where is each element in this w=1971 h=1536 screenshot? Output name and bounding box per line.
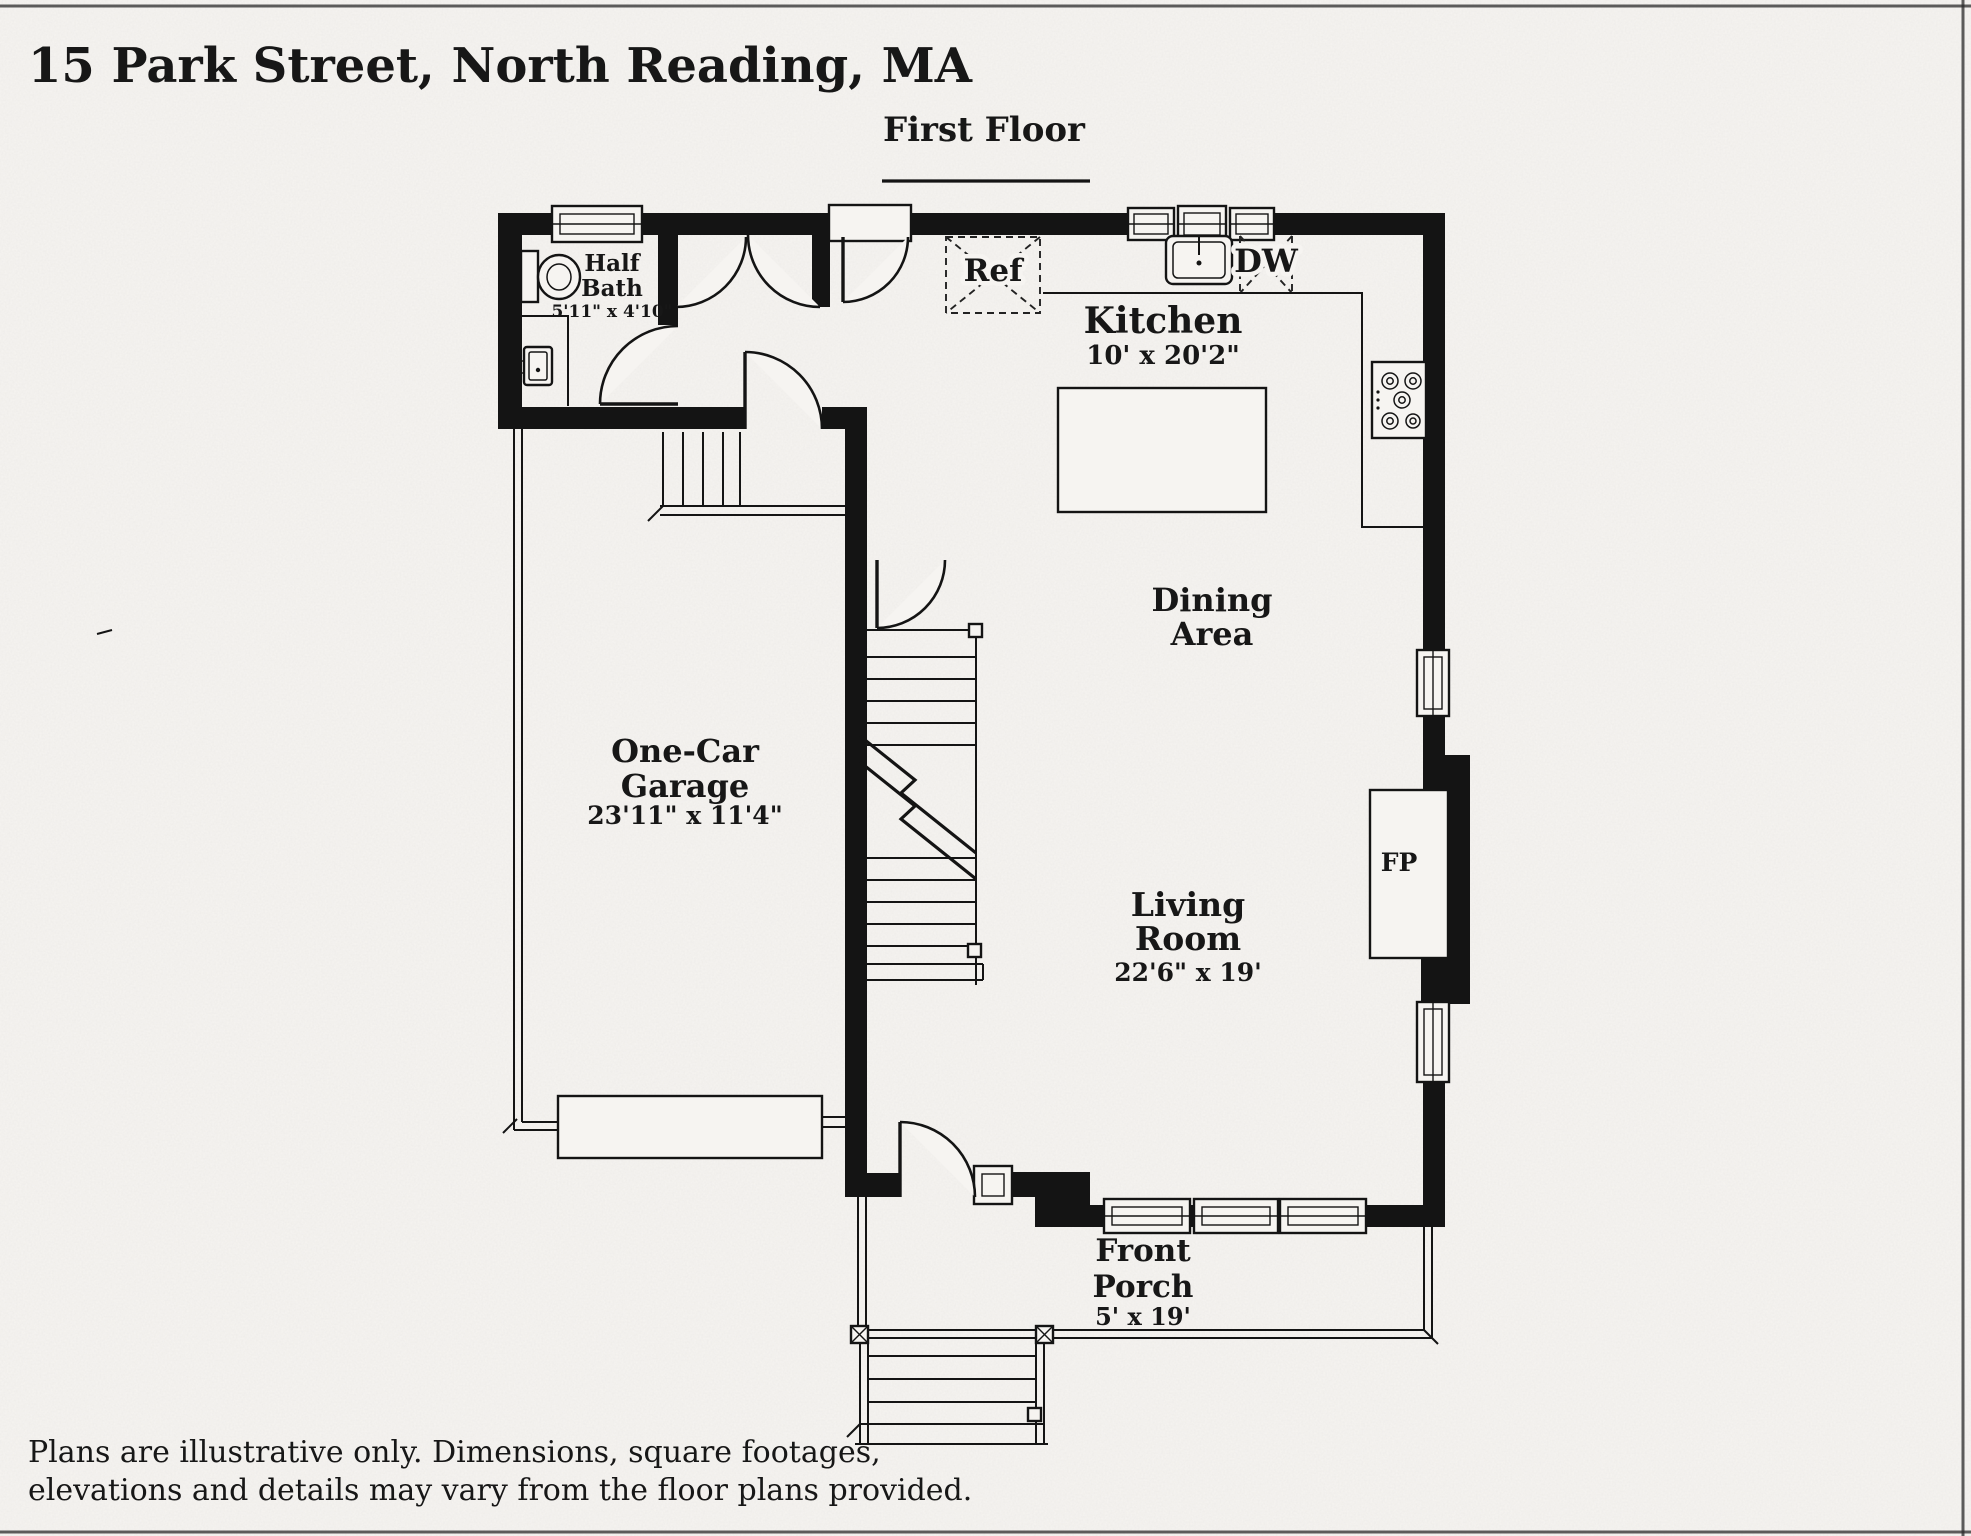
room-label-garage-2: Garage xyxy=(621,767,749,805)
label-dishwasher: DW xyxy=(1234,242,1299,280)
page-title: 15 Park Street, North Reading, MA xyxy=(28,38,973,94)
porch-post-right xyxy=(1036,1326,1053,1343)
step-post xyxy=(1028,1408,1041,1421)
room-label-half-bath-2: Bath xyxy=(581,275,643,302)
kitchen-island xyxy=(1058,388,1266,512)
room-label-dining-2: Area xyxy=(1170,615,1254,653)
floor-plan-svg: 15 Park Street, North Reading, MA First … xyxy=(0,0,1971,1536)
window-living-front-3 xyxy=(1280,1199,1366,1233)
window-living-front-2 xyxy=(1194,1199,1278,1233)
window-kitchen-1 xyxy=(1128,208,1174,240)
window-entry-side xyxy=(974,1166,1012,1204)
room-label-half-bath-1: Half xyxy=(584,250,641,277)
room-dims-porch: 5' x 19' xyxy=(1095,1302,1191,1331)
cooktop-icon xyxy=(1372,362,1426,438)
window-half-bath xyxy=(552,206,642,242)
window-living-front-1 xyxy=(1104,1199,1190,1233)
room-label-dining-1: Dining xyxy=(1152,581,1273,619)
disclaimer-line-1: Plans are illustrative only. Dimensions,… xyxy=(28,1435,881,1470)
scanned-floor-plan-page: 15 Park Street, North Reading, MA First … xyxy=(0,0,1971,1536)
kitchen-sink-icon xyxy=(1166,236,1232,284)
room-dims-garage: 23'11" x 11'4" xyxy=(587,801,782,830)
room-dims-kitchen: 10' x 20'2" xyxy=(1086,341,1240,371)
floor-label: First Floor xyxy=(883,110,1086,150)
room-label-porch-1: Front xyxy=(1095,1233,1191,1269)
room-label-kitchen: Kitchen xyxy=(1084,300,1243,342)
window-dining-side xyxy=(1417,650,1449,716)
disclaimer-line-2: elevations and details may vary from the… xyxy=(28,1473,972,1508)
newel-post xyxy=(969,624,982,637)
toilet-icon xyxy=(521,251,580,302)
label-refrigerator: Ref xyxy=(964,253,1024,289)
room-label-porch-2: Porch xyxy=(1093,1269,1194,1305)
room-dims-half-bath: 5'11" x 4'10" xyxy=(551,302,672,322)
porch-post-left xyxy=(851,1326,868,1343)
room-label-garage-1: One-Car xyxy=(611,732,760,770)
label-fireplace: FP xyxy=(1381,848,1418,877)
window-living-side xyxy=(1417,1002,1449,1082)
window-kitchen-3 xyxy=(1230,208,1274,240)
room-dims-living: 22'6" x 19' xyxy=(1114,958,1262,987)
newel-post xyxy=(968,944,981,957)
room-label-living-2: Room xyxy=(1135,919,1241,958)
garage-door xyxy=(558,1096,822,1158)
